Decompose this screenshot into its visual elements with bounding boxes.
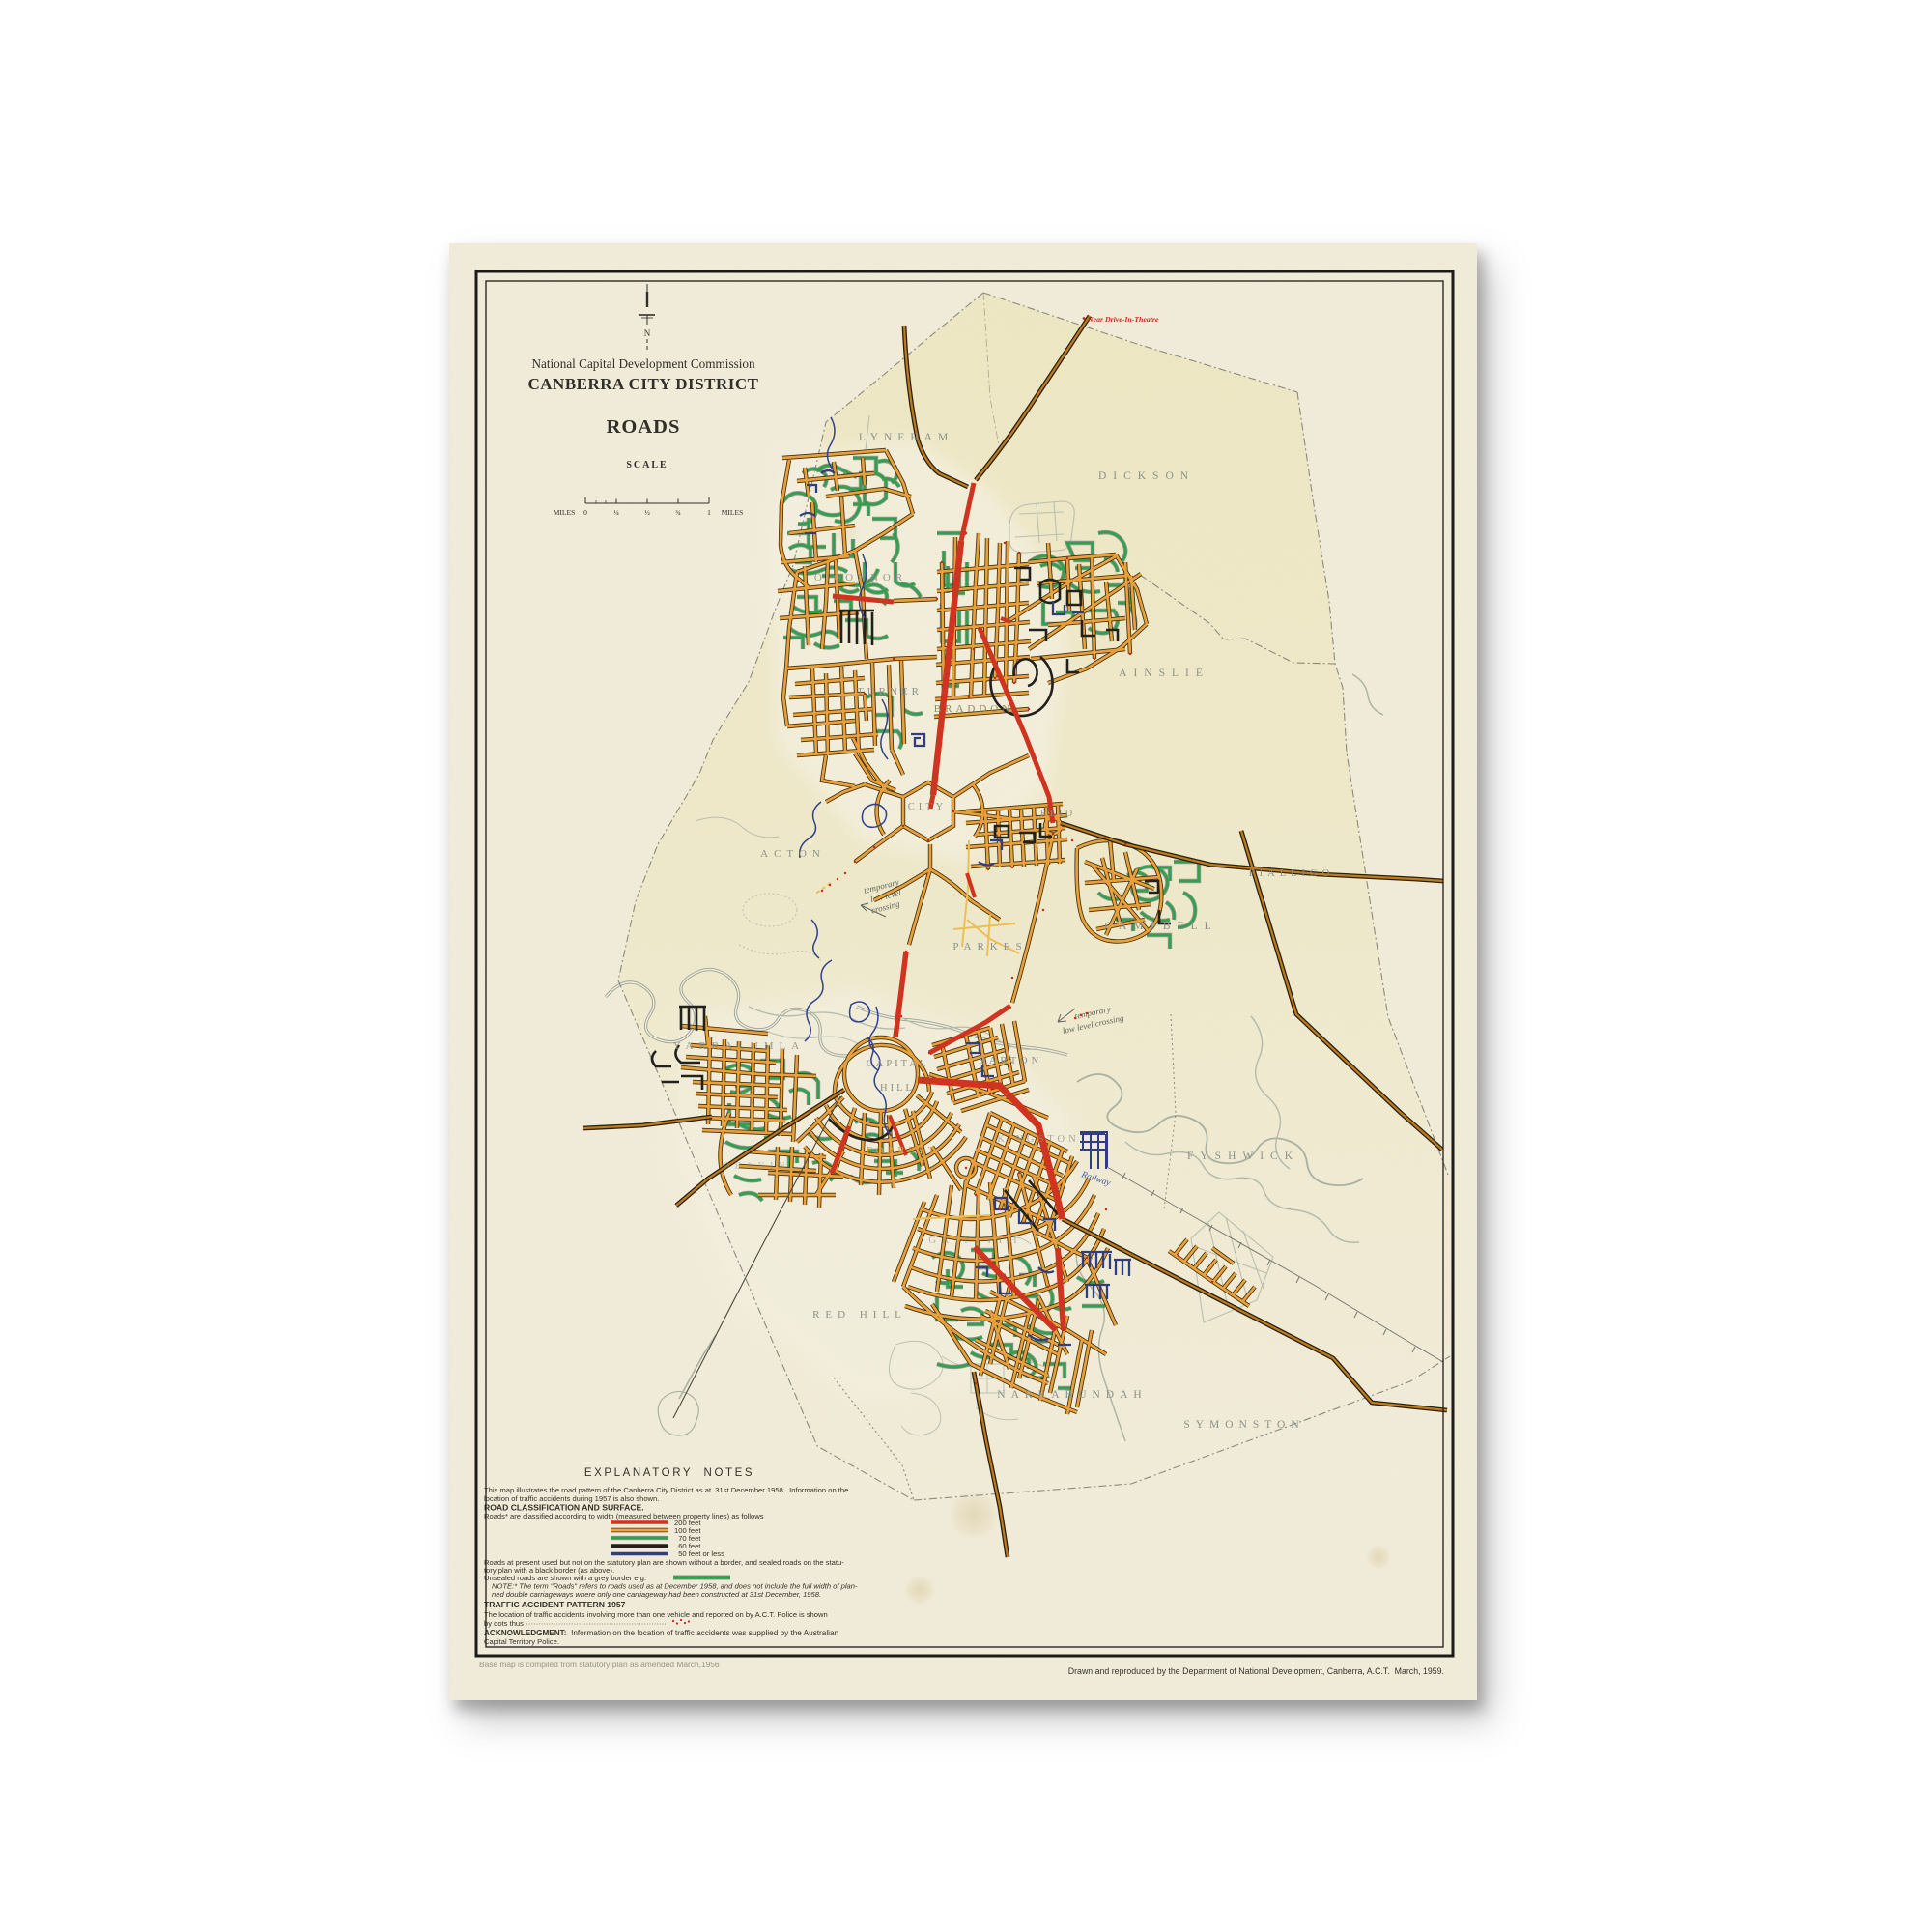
svg-text:Drawn and reproduced by the De: Drawn and reproduced by the Department o… xyxy=(1068,1666,1444,1676)
svg-text:Base map is compiled from stat: Base map is compiled from statutory plan… xyxy=(479,1660,720,1669)
